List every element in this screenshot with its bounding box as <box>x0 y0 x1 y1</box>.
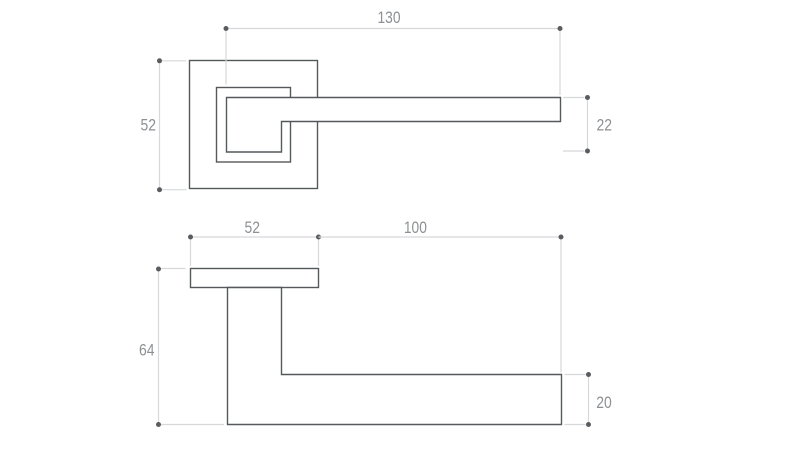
svg-text:130: 130 <box>378 9 401 27</box>
svg-text:52: 52 <box>141 116 157 134</box>
svg-text:100: 100 <box>404 219 427 237</box>
svg-text:52: 52 <box>245 219 261 237</box>
svg-text:22: 22 <box>597 117 613 135</box>
svg-text:20: 20 <box>596 394 612 412</box>
svg-text:64: 64 <box>139 342 155 360</box>
